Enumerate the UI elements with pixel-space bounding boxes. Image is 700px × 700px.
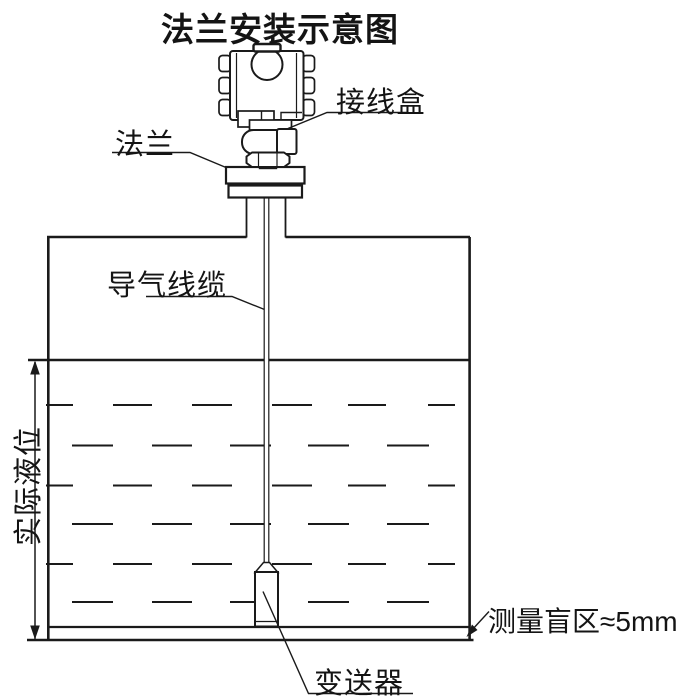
capsule-right-block bbox=[277, 129, 297, 154]
actual-level-label: 实际液位 bbox=[5, 422, 35, 550]
junction-box-label: 接线盒 bbox=[336, 79, 426, 121]
junction-box-head bbox=[219, 44, 315, 169]
liquid-dashes bbox=[46, 405, 455, 602]
air-cable-label: 导气线缆 bbox=[107, 262, 227, 304]
flange-installation-diagram: 法兰安装示意图 接线盒 法兰 导气线缆 实际液位 变送器 测量盲区≈5mm bbox=[0, 0, 700, 700]
blind-zone-label: 测量盲区≈5mm bbox=[488, 600, 678, 640]
top-dome bbox=[252, 49, 283, 80]
flange-top-plate bbox=[226, 167, 305, 184]
hex-nut bbox=[247, 153, 290, 168]
air-guide-cable bbox=[264, 197, 269, 566]
leader-lines bbox=[112, 113, 489, 694]
flange-bottom-plate bbox=[229, 186, 303, 198]
flange-label: 法兰 bbox=[115, 121, 175, 163]
flange-assembly bbox=[226, 167, 305, 198]
diagram-title: 法兰安装示意图 bbox=[151, 3, 409, 51]
transmitter-label: 变送器 bbox=[314, 660, 404, 700]
tank-outline bbox=[27, 237, 474, 641]
dimension-arrow-up bbox=[30, 361, 40, 375]
dimension-arrow-down bbox=[30, 626, 40, 640]
